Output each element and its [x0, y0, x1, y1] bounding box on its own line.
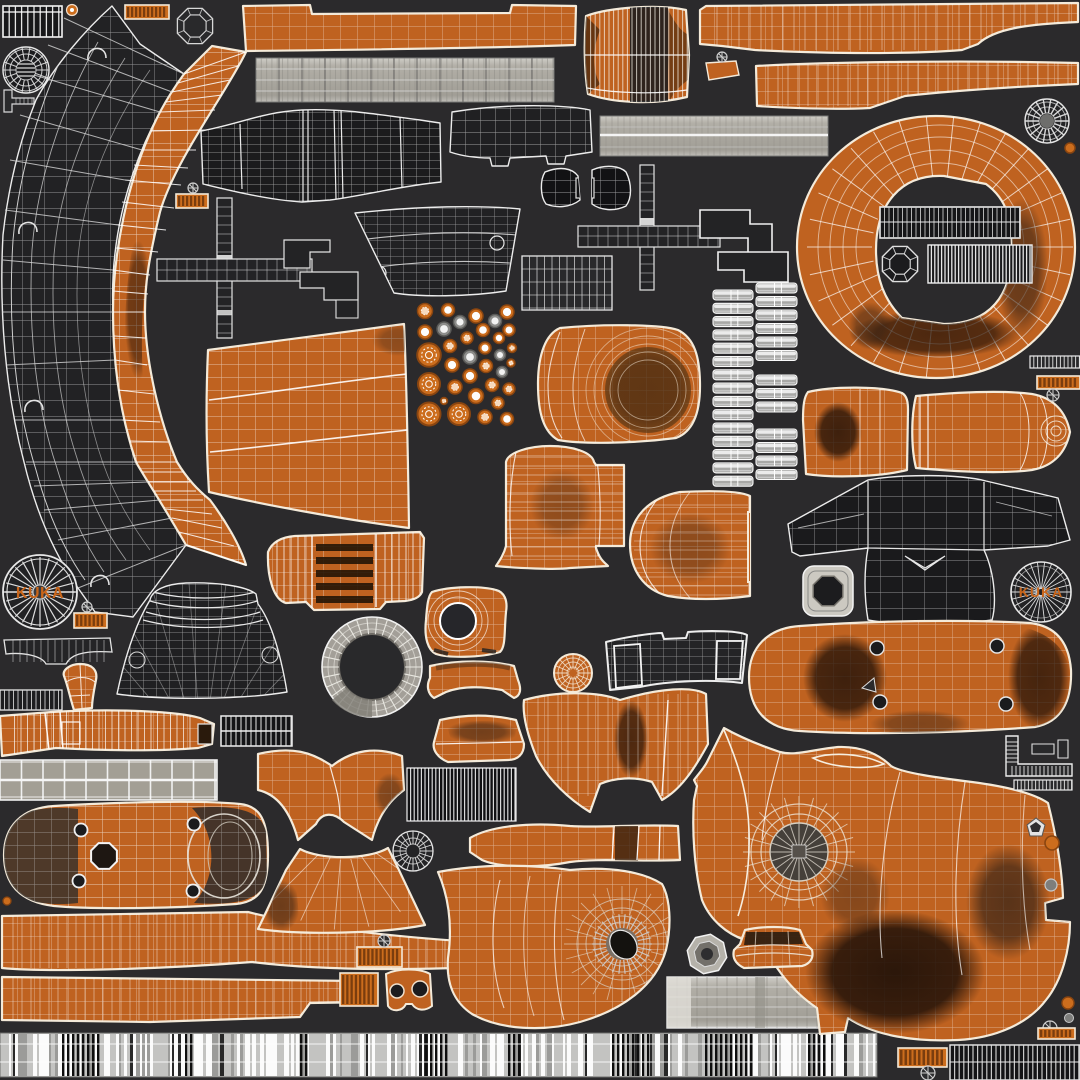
svg-text:KUKA: KUKA: [16, 585, 64, 602]
svg-text:KUKA: KUKA: [1019, 584, 1063, 600]
